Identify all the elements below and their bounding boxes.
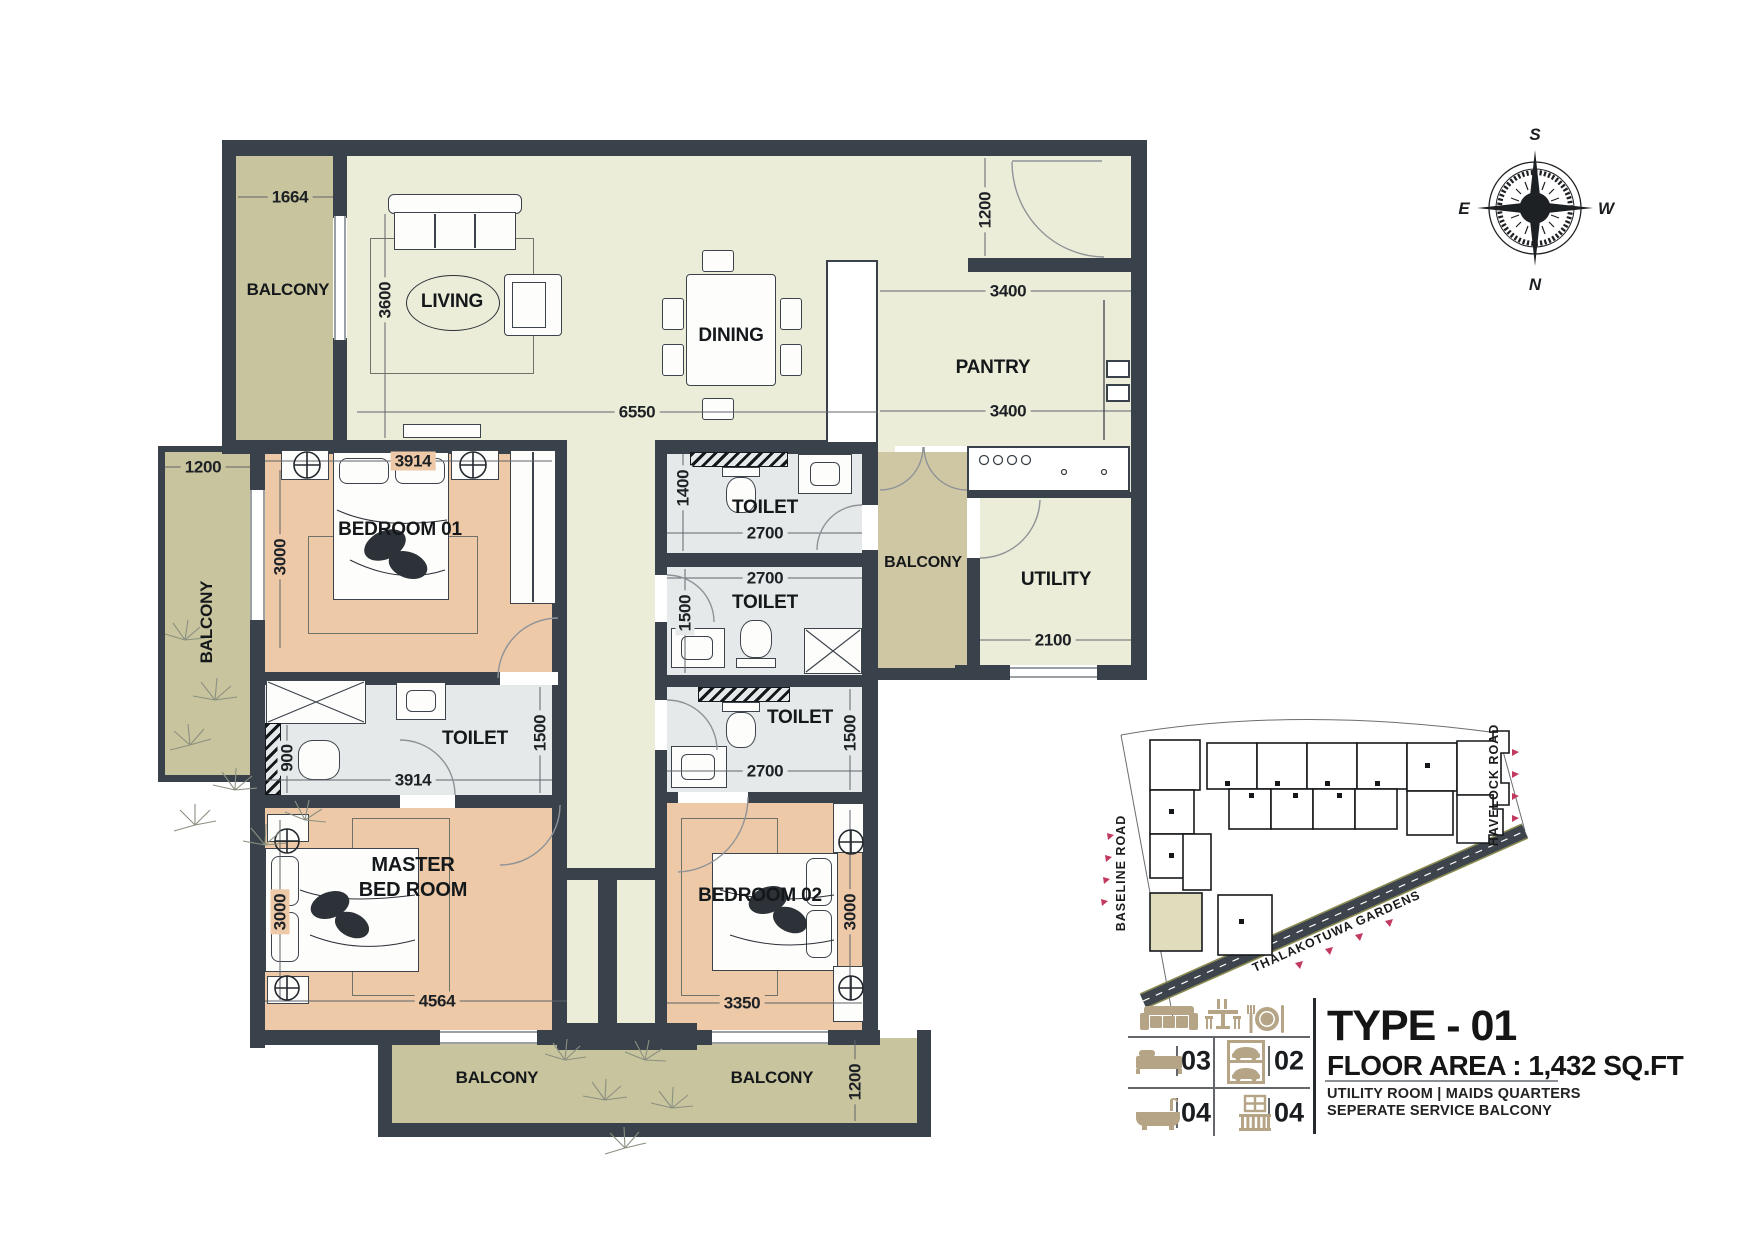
pantry-appliance [1106,384,1130,402]
dim-entry-recess: 1200 [976,188,995,233]
sliding-door [712,1031,828,1044]
room-label-bedroom01: BEDROOM 01 [338,519,462,541]
bed-pillow [806,910,832,958]
dim-master-width: 4564 [415,992,460,1011]
wall-segment [967,492,1131,498]
dining-chair [702,398,734,420]
wall-segment [552,685,567,1030]
room-label-balcony-top-left: BALCONY [247,280,330,300]
dim-master-toilet-width: 3914 [391,771,436,790]
legend-divider [1128,1087,1310,1089]
wall-segment [250,1030,440,1045]
wardrobe [833,966,864,1022]
wall-segment [748,792,878,803]
wall-segment [655,792,678,803]
floor-plan-sheet: BALCONY LIVING DINING PANTRY UTILITY BAL… [0,0,1755,1242]
dim-pantry-width-upper: 3400 [986,282,1031,301]
wall-segment [158,775,257,782]
dim-balcony-tl-width: 1664 [268,188,313,207]
dinner-plate-icon [1245,1005,1285,1033]
dim-master-toilet-nook: 900 [278,740,297,775]
dim-living-depth: 3600 [376,278,395,323]
wall-segment [917,1030,931,1137]
dining-chair [662,344,684,376]
sofa-cushion-line [474,214,476,248]
site-map: BASELINE ROAD HAVELOCK ROAD THALAKOTUWA … [993,683,1533,1023]
bed-pillow [339,458,389,484]
wall-segment [655,622,667,700]
legend-note-line2: SEPERATE SERVICE BALCONY [1327,1103,1552,1119]
bed-icon [1136,1048,1182,1074]
dim-toilet3-depth: 1500 [841,711,860,756]
wall-segment [955,665,1010,680]
shower-cubicle [266,680,366,724]
bathtub-icon [1134,1098,1182,1130]
washbasin [681,636,713,660]
legend-note-line1: UTILITY ROOM | MAIDS QUARTERS [1327,1086,1581,1102]
dining-table-icon [1205,999,1241,1033]
floor-area-text: FLOOR AREA : 1,432 SQ.FT [1327,1050,1683,1082]
wall-segment [828,1030,880,1045]
bedside-table [267,976,309,1004]
legend-note-divider [1325,1080,1558,1082]
wall-segment [1131,156,1147,680]
washbasin [810,462,840,486]
wall-segment [557,868,665,880]
toilet-shelf [690,452,788,467]
pantry-appliance [1106,360,1130,378]
wall-segment [968,258,1147,272]
bedside-table [281,450,329,480]
dim-master-depth: 3000 [271,890,290,935]
room-label-balcony-left: BALCONY [197,581,217,664]
dim-bedroom01-width: 3914 [391,452,436,471]
balcony-count: 04 [1274,1098,1304,1129]
site-label-thalakotuwa-gardens: THALAKOTUWA GARDENS [1250,888,1422,975]
wall-segment [455,795,567,808]
room-label-utility: UTILITY [1021,569,1091,591]
dim-bedroom02-width: 3350 [720,994,765,1013]
compass-south-label: S [1529,125,1541,144]
dim-toilet1-width: 2700 [743,524,788,543]
dim-toilet1-depth: 1400 [674,466,693,511]
bathroom-count: 04 [1181,1098,1211,1129]
washbasin [681,754,715,780]
wall-segment [250,452,265,490]
dim-living-width: 6550 [615,403,660,422]
balcony-railing-icon [1237,1094,1273,1132]
wall-segment [655,1030,712,1045]
dim-bedroom01-depth: 3000 [271,535,290,580]
room-label-toilet2: TOILET [732,592,798,614]
wc-toilet [726,712,756,748]
wall-segment [158,446,222,452]
wc-toilet [722,467,760,477]
dim-toilet2-width: 2700 [743,569,788,588]
wc-toilet [736,658,776,668]
compass-north-label: N [1529,275,1542,294]
room-label-balcony-bottom-right: BALCONY [731,1068,814,1088]
dim-utility-width: 2100 [1031,631,1076,650]
dim-toilet3-width: 2700 [743,762,788,781]
sofa [394,212,516,250]
wall-segment [655,803,667,1030]
legend-divider [1213,1036,1215,1136]
corridor-floor [567,440,655,803]
wall-segment [862,803,878,1030]
compass-east-label: E [1458,199,1470,218]
wardrobe [833,803,864,853]
wall-segment [667,675,862,687]
dining-cabinet [826,260,878,444]
dining-chair [780,298,802,330]
room-label-toilet3: TOILET [767,707,833,729]
wall-segment [655,454,667,575]
compass-west-label: W [1598,199,1615,218]
wc-toilet [722,702,760,712]
sliding-door [334,216,346,340]
dim-master-toilet-depth: 1500 [531,711,550,756]
wall-segment [378,1030,392,1130]
wall-segment [222,156,236,452]
bedside-table [451,450,499,480]
bedroom-count: 03 [1181,1046,1211,1077]
room-label-pantry: PANTRY [956,357,1031,379]
utility-window [1010,667,1097,678]
dining-chair [780,344,802,376]
kitchen-counter [967,446,1130,492]
wall-segment [667,553,862,567]
wall-segment [333,156,347,218]
car-parking-icon [1227,1040,1265,1084]
dim-toilet2-depth: 1500 [676,591,695,636]
room-label-living: LIVING [421,291,483,313]
dim-bedroom02-depth: 3000 [841,890,860,935]
wall-segment [378,1123,931,1137]
washbasin [406,690,436,712]
wall-segment [598,880,617,1025]
legend-divider [1128,1036,1310,1038]
room-label-toilet1: TOILET [732,497,798,519]
dining-chair [702,250,734,272]
sofa-cushion-line [434,214,436,248]
wardrobe-line [532,452,534,602]
wall-segment [158,446,165,782]
site-label-havelock-road: HAVELOCK ROAD [1487,724,1501,847]
room-label-balcony-bottom-left: BALCONY [456,1068,539,1088]
sliding-door [250,490,265,620]
shower-cubicle [804,628,862,674]
wall-segment [1097,665,1147,680]
room-label-balcony-service: BALCONY [884,554,962,572]
bedside-table [267,814,309,842]
legend-separator [1268,1046,1270,1076]
wc-toilet [740,620,772,658]
armchair [512,282,546,328]
toilet-shelf [698,687,790,702]
wall-segment [862,550,878,803]
sliding-door [440,1031,537,1044]
sofa [388,194,522,214]
wall-segment [222,140,1147,156]
wall-segment [967,558,980,668]
wall-segment [558,672,567,685]
dim-balcony-left-width: 1200 [181,458,226,477]
wall-segment [862,454,878,505]
wall-segment [878,668,967,680]
wc-toilet [298,740,340,780]
dining-chair [662,298,684,330]
wall-segment [250,795,400,808]
parking-count: 02 [1274,1046,1304,1077]
room-label-master-toilet: TOILET [442,728,508,750]
room-label-bedroom02: BEDROOM 02 [698,885,822,907]
dim-balcony-br-depth: 1200 [846,1060,865,1105]
sofa-icon [1140,1006,1198,1034]
wall-segment [333,338,347,452]
dim-pantry-width-lower: 3400 [986,402,1031,421]
tv-console [403,424,481,438]
room-label-master-bedroom: MASTER BED ROOM [353,853,473,903]
legend-title-divider [1313,998,1316,1134]
compass-rose: S E W N [1455,118,1615,298]
site-label-baseline-road: BASELINE ROAD [1114,815,1128,931]
room-label-dining: DINING [698,325,763,347]
